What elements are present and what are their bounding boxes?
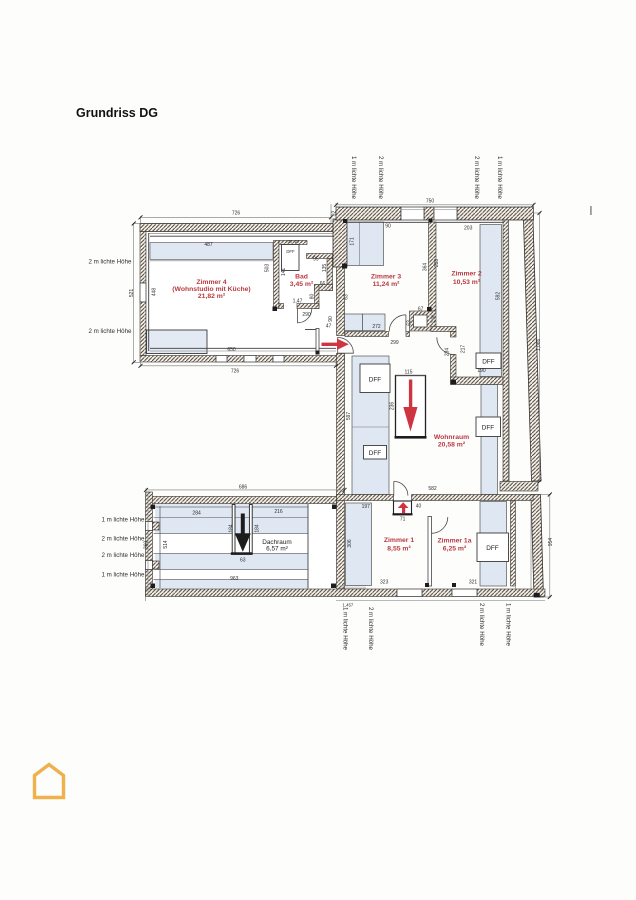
- svg-text:20,58 m²: 20,58 m²: [438, 442, 466, 449]
- svg-text:3,45 m²: 3,45 m²: [290, 281, 314, 288]
- svg-text:299: 299: [390, 340, 399, 346]
- svg-text:DFF: DFF: [482, 359, 495, 366]
- svg-text:750: 750: [426, 199, 435, 205]
- svg-text:364: 364: [423, 263, 429, 272]
- svg-text:272: 272: [372, 324, 381, 330]
- svg-text:Zimmer 4: Zimmer 4: [196, 279, 226, 286]
- svg-text:726: 726: [232, 211, 241, 217]
- svg-text:1 m lichte Höhe: 1 m lichte Höhe: [342, 607, 349, 651]
- svg-text:8,55 m²: 8,55 m²: [387, 546, 411, 553]
- svg-text:321: 321: [469, 580, 478, 586]
- svg-text:2 m lichte Höhe: 2 m lichte Höhe: [102, 536, 146, 543]
- svg-text:1 m lichte Höhe: 1 m lichte Höhe: [505, 603, 512, 647]
- svg-text:Zimmer 1: Zimmer 1: [384, 537, 414, 544]
- svg-text:1 m lichte Höhe: 1 m lichte Höhe: [350, 156, 357, 200]
- svg-text:233: 233: [434, 259, 440, 268]
- svg-text:Wohnraum: Wohnraum: [434, 434, 469, 441]
- svg-text:80: 80: [310, 294, 316, 300]
- svg-text:27: 27: [295, 239, 300, 244]
- svg-text:592: 592: [496, 292, 502, 301]
- svg-text:323: 323: [380, 580, 389, 586]
- svg-text:216: 216: [274, 509, 283, 515]
- svg-text:1 m lichte Höhe: 1 m lichte Höhe: [496, 156, 503, 200]
- svg-text:10,53 m²: 10,53 m²: [453, 279, 481, 286]
- svg-text:2 m lichte Höhe: 2 m lichte Höhe: [473, 156, 480, 200]
- svg-text:Zimmer 1a: Zimmer 1a: [437, 538, 471, 545]
- svg-text:(Wohnstudio mit Küche): (Wohnstudio mit Küche): [172, 286, 250, 293]
- svg-text:37: 37: [288, 239, 293, 244]
- svg-text:236: 236: [390, 402, 396, 411]
- svg-text:1,47: 1,47: [293, 299, 303, 305]
- svg-text:203: 203: [464, 226, 473, 232]
- svg-text:650: 650: [227, 347, 236, 353]
- svg-text:67: 67: [418, 307, 424, 313]
- svg-text:514: 514: [163, 540, 169, 549]
- svg-text:Zimmer 3: Zimmer 3: [371, 274, 401, 281]
- svg-text:DFF: DFF: [369, 450, 382, 457]
- svg-text:184: 184: [229, 524, 235, 533]
- svg-text:2 m lichte Höhe: 2 m lichte Höhe: [367, 607, 374, 651]
- svg-text:197: 197: [362, 504, 371, 510]
- svg-text:DFF: DFF: [286, 249, 295, 254]
- svg-text:963: 963: [230, 576, 239, 582]
- svg-text:2 m lichte Höhe: 2 m lichte Höhe: [478, 603, 485, 647]
- svg-text:503: 503: [265, 264, 271, 273]
- svg-text:184: 184: [255, 524, 261, 533]
- svg-text:47: 47: [326, 324, 332, 330]
- svg-text:90: 90: [385, 224, 391, 230]
- svg-text:686: 686: [239, 485, 248, 491]
- svg-text:95: 95: [313, 257, 319, 263]
- svg-text:DFF: DFF: [369, 377, 382, 384]
- svg-text:DFF: DFF: [486, 545, 499, 552]
- svg-text:190: 190: [477, 368, 486, 374]
- svg-text:6,25 m²: 6,25 m²: [443, 546, 467, 553]
- svg-text:63: 63: [344, 294, 350, 300]
- svg-text:521: 521: [129, 289, 135, 298]
- svg-text:21,82 m²: 21,82 m²: [198, 293, 226, 300]
- svg-text:92: 92: [332, 211, 338, 217]
- svg-text:71: 71: [400, 517, 406, 523]
- svg-text:1 m lichte Höhe: 1 m lichte Höhe: [102, 572, 146, 579]
- svg-text:6,57 m²: 6,57 m²: [266, 546, 288, 553]
- svg-text:2 m lichte Höhe: 2 m lichte Höhe: [89, 259, 133, 266]
- svg-text:306: 306: [347, 539, 353, 548]
- svg-text:115: 115: [405, 370, 413, 376]
- svg-text:726: 726: [231, 369, 240, 375]
- svg-text:1,30: 1,30: [431, 314, 436, 323]
- svg-text:217: 217: [461, 345, 467, 354]
- svg-text:1,066: 1,066: [536, 339, 542, 352]
- svg-text:11,24 m²: 11,24 m²: [373, 281, 401, 288]
- svg-text:Zimmer 2: Zimmer 2: [451, 271, 481, 278]
- svg-text:2 m lichte Höhe: 2 m lichte Höhe: [377, 156, 384, 200]
- svg-text:66: 66: [320, 281, 326, 287]
- svg-text:2 m lichte Höhe: 2 m lichte Höhe: [102, 552, 146, 559]
- svg-text:2 m lichte Höhe: 2 m lichte Höhe: [89, 328, 133, 335]
- svg-text:582: 582: [428, 486, 437, 492]
- svg-text:171: 171: [350, 237, 356, 246]
- svg-text:Grundriss DG: Grundriss DG: [76, 106, 158, 120]
- svg-text:90: 90: [328, 316, 334, 322]
- svg-text:290: 290: [302, 312, 311, 318]
- svg-text:597: 597: [346, 412, 352, 421]
- svg-text:Bad: Bad: [295, 274, 308, 281]
- svg-text:234: 234: [445, 348, 451, 357]
- svg-text:954: 954: [548, 538, 554, 547]
- svg-text:448: 448: [152, 288, 158, 297]
- svg-text:487: 487: [204, 242, 213, 248]
- svg-text:135: 135: [322, 264, 328, 273]
- svg-text:63: 63: [407, 320, 413, 326]
- svg-text:141: 141: [281, 268, 287, 277]
- svg-text:40: 40: [416, 504, 422, 510]
- svg-text:1 m lichte Höhe: 1 m lichte Höhe: [102, 517, 146, 524]
- svg-text:284: 284: [192, 511, 201, 517]
- svg-text:DFF: DFF: [482, 425, 495, 432]
- svg-text:63: 63: [240, 558, 246, 564]
